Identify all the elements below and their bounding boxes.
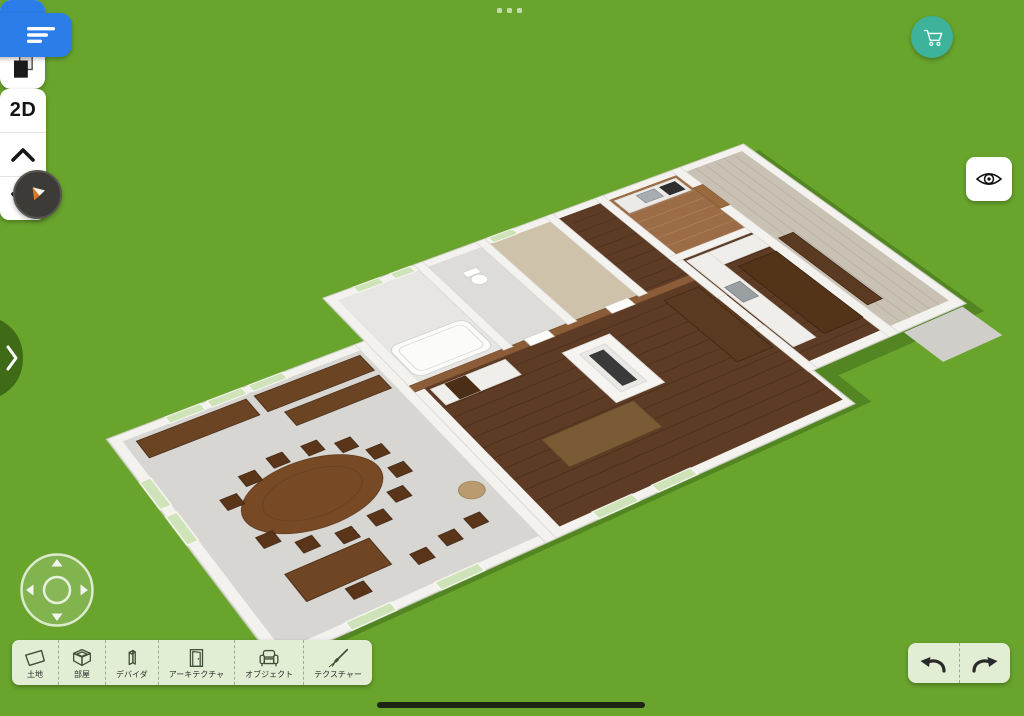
- history-panel: [908, 643, 1010, 683]
- toolbar-item-label: アーキテクチャ: [169, 671, 224, 679]
- divider-panel-icon: [119, 646, 145, 670]
- eye-icon: [973, 167, 1005, 191]
- menu-button[interactable]: [0, 13, 72, 57]
- toolbar-item-label: 部屋: [74, 671, 90, 679]
- floorplan-render: [61, 140, 1018, 673]
- hamburger-menu-icon: [23, 24, 59, 46]
- land-plot-icon: [22, 646, 48, 670]
- drag-dots-icon[interactable]: [497, 8, 522, 13]
- visibility-button[interactable]: [966, 157, 1012, 201]
- toolbar-item-label: デバイダ: [116, 671, 148, 679]
- toolbar-item-label: 土地: [27, 671, 43, 679]
- undo-button[interactable]: [908, 643, 959, 683]
- toolbar-item-land[interactable]: 土地: [12, 640, 58, 685]
- room-box-icon: [69, 646, 95, 670]
- compass-button[interactable]: [13, 170, 62, 219]
- paintbrush-icon: [325, 646, 351, 670]
- toolbar-item-architecture[interactable]: アーキテクチャ: [158, 640, 234, 685]
- shopping-cart-icon: [919, 24, 945, 50]
- toolbar-item-dividers[interactable]: デバイダ: [105, 640, 158, 685]
- toolbar-item-textures[interactable]: テクスチャー: [303, 640, 372, 685]
- compass-needle-icon: [21, 178, 55, 212]
- redo-arrow-icon: [968, 650, 1002, 676]
- move-joystick[interactable]: [18, 551, 96, 629]
- redo-button[interactable]: [959, 643, 1011, 683]
- home-indicator[interactable]: [377, 702, 645, 708]
- toolbar-item-rooms[interactable]: 部屋: [58, 640, 105, 685]
- door-icon: [183, 646, 209, 670]
- floorplan-canvas[interactable]: [61, 140, 1018, 673]
- cart-button[interactable]: [911, 16, 953, 58]
- toolbar-item-label: テクスチャー: [314, 671, 362, 679]
- armchair-icon: [256, 646, 282, 670]
- app-screen: 2D 土地: [0, 0, 1024, 716]
- scene-3d[interactable]: [0, 0, 1024, 716]
- drawer-tab[interactable]: [0, 320, 26, 396]
- toolbar-item-label: オブジェクト: [245, 671, 293, 679]
- category-toolbar: 土地 部屋 デバイダ: [12, 640, 372, 685]
- undo-arrow-icon: [916, 650, 950, 676]
- toolbar-item-objects[interactable]: オブジェクト: [234, 640, 303, 685]
- move-joystick-icon: [18, 551, 96, 629]
- drawer-tab-shape: [0, 320, 26, 396]
